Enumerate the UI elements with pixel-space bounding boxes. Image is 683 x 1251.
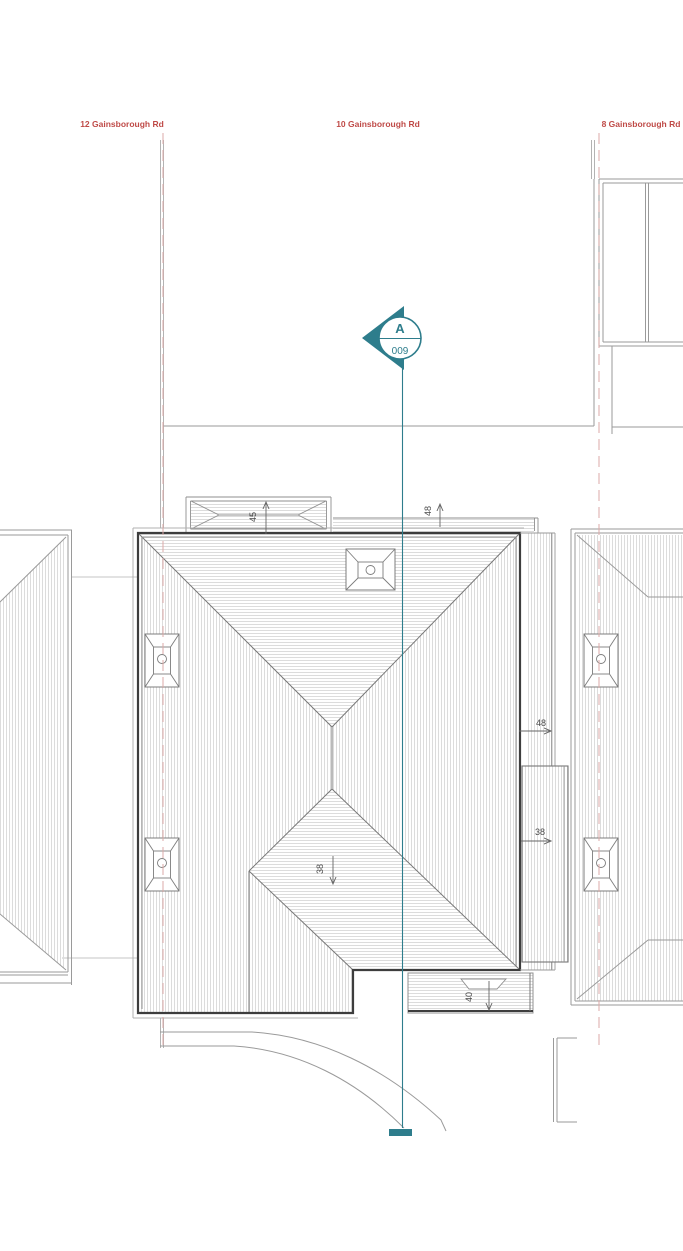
chimney-right-lower bbox=[584, 838, 618, 891]
canopy-hatch bbox=[191, 502, 326, 529]
street-edge-lines bbox=[163, 179, 683, 434]
dim-label-right-lower: 38 bbox=[535, 827, 545, 837]
roof-plan-canvas: 45 48 48 38 38 40 12 Gainsborough Rd 10 … bbox=[0, 0, 683, 1251]
address-label-12: 12 Gainsborough Rd bbox=[80, 119, 164, 129]
kerb-curves bbox=[160, 1032, 577, 1131]
chimney-left-lower bbox=[145, 838, 179, 891]
wide-strip-hatch bbox=[522, 766, 568, 962]
eaves-strip-top-right bbox=[333, 518, 538, 533]
left-neighbor-roof bbox=[0, 530, 72, 985]
dim-label-right-upper: 48 bbox=[536, 718, 546, 728]
section-marker[interactable]: A 009 bbox=[362, 306, 421, 370]
roof-plan-drawing: 45 48 48 38 38 40 12 Gainsborough Rd 10 … bbox=[0, 0, 683, 1251]
address-label-10: 10 Gainsborough Rd bbox=[336, 119, 420, 129]
address-labels: 12 Gainsborough Rd 10 Gainsborough Rd 8 … bbox=[80, 119, 680, 129]
section-marker-letter: A bbox=[395, 321, 405, 336]
dim-label-top-strip: 48 bbox=[423, 506, 433, 516]
chimney-left-upper bbox=[145, 634, 179, 687]
right-side-strips bbox=[520, 533, 568, 970]
right-neighbor-hatch bbox=[577, 535, 683, 1001]
dim-label-south: 38 bbox=[315, 864, 325, 874]
fence-lines-between-plots bbox=[62, 577, 137, 958]
right-neighbor-roof bbox=[571, 529, 683, 1005]
dim-label-projection: 40 bbox=[464, 992, 474, 1002]
strip-hatch bbox=[333, 519, 534, 532]
dim-label-canopy: 45 bbox=[248, 512, 258, 522]
section-marker-number: 009 bbox=[392, 346, 409, 357]
section-line-end-cap bbox=[389, 1129, 412, 1136]
garage-block-outline bbox=[599, 179, 683, 346]
left-neighbor-hatch bbox=[0, 537, 66, 970]
chimney-right-upper bbox=[584, 634, 618, 687]
address-label-8: 8 Gainsborough Rd bbox=[602, 119, 681, 129]
main-roof bbox=[133, 528, 524, 1018]
chimney-top bbox=[346, 549, 395, 590]
